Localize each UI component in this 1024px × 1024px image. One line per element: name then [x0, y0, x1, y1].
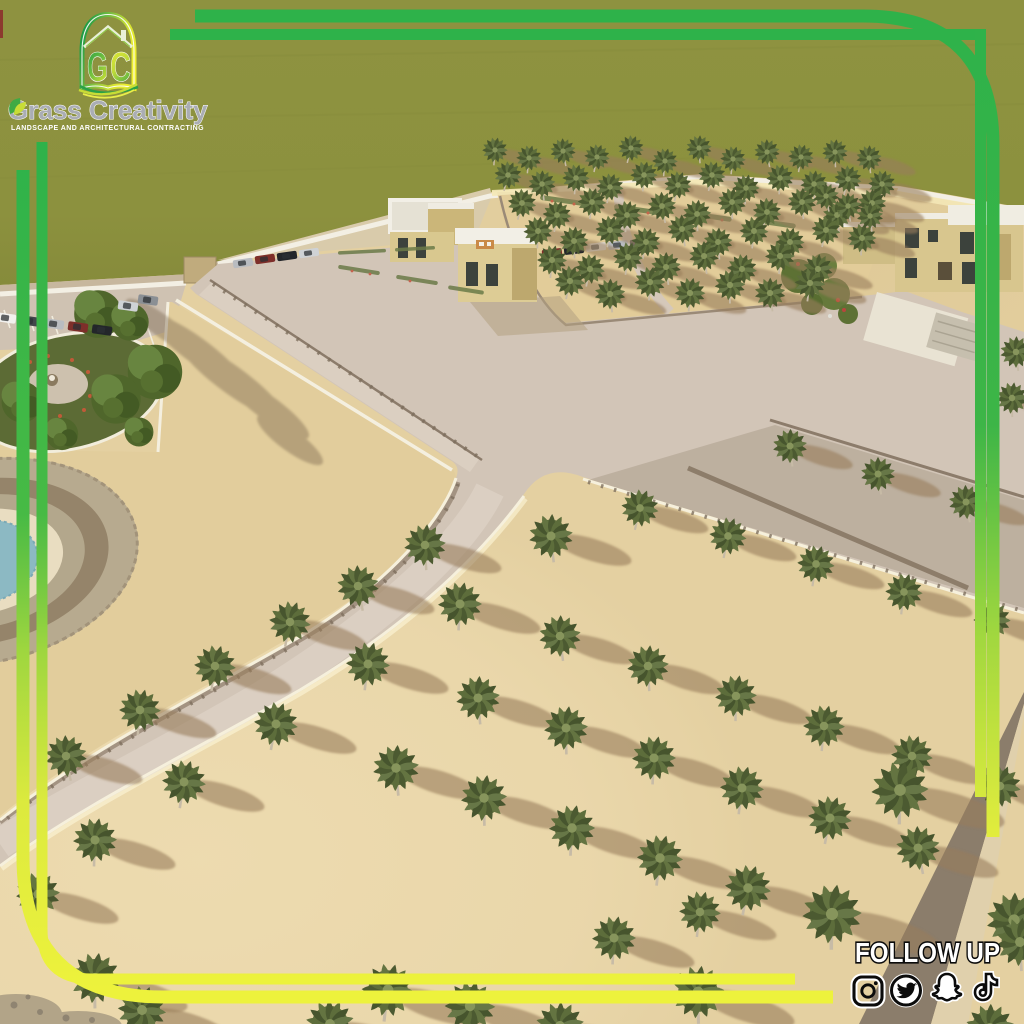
svg-text:G: G	[87, 43, 108, 90]
svg-text:FOLLOW UP: FOLLOW UP	[855, 937, 1000, 968]
svg-text:C: C	[110, 43, 131, 90]
svg-text:LANDSCAPE AND ARCHITECTURAL CO: LANDSCAPE AND ARCHITECTURAL CONTRACTING	[11, 125, 204, 132]
svg-text:Grass Creativity: Grass Creativity	[8, 95, 208, 125]
